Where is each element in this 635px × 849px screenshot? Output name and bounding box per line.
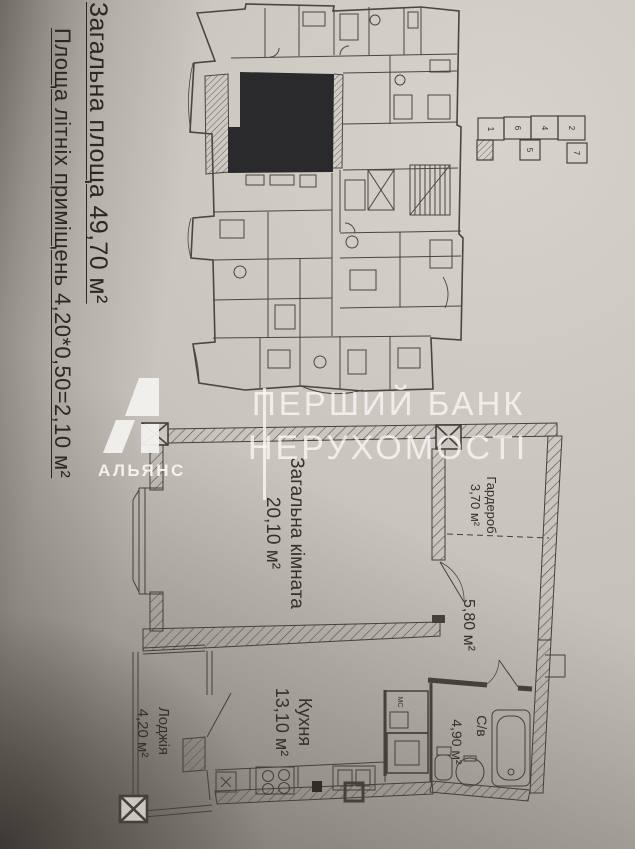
living-room-area: 20,10 м² — [262, 497, 283, 569]
note-summer-area: Площа літніх приміщень 4,20*0,50=2,10 м² — [49, 28, 75, 478]
key-section-7: 7 — [572, 151, 581, 156]
wardrobe-name: Гардероб — [484, 476, 499, 533]
loggia-area: 4,20 м² — [134, 709, 151, 758]
key-section-1: 1 — [486, 127, 495, 132]
key-section-2: 2 — [567, 126, 576, 131]
highlighted-unit — [228, 72, 334, 173]
watermark-line2: НЕРУХОМОСТІ — [248, 429, 528, 468]
watermark-line1: ПЕРШИЙ БАНК — [252, 385, 526, 423]
key-section-4: 4 — [540, 126, 549, 131]
key-section-5: 5 — [525, 148, 534, 153]
kitchen-area: 13,10 м² — [272, 688, 292, 756]
brand-name: АЛЬЯНС — [98, 461, 186, 481]
wardrobe-area: 3,70 м² — [468, 484, 483, 527]
loggia-name: Лоджія — [155, 707, 172, 755]
note-total-area: Загальна площа 49,70 м² — [83, 2, 112, 304]
key-plan: 1 6 4 2 5 7 — [477, 116, 587, 163]
key-plan-current-section — [477, 140, 493, 160]
floor-plan-photo: 1 6 4 2 5 7 — [0, 0, 635, 849]
bathroom-name: С/в — [474, 715, 490, 736]
hallway-area: 5,80 м² — [460, 599, 477, 652]
living-room-name: Загальна кімната — [286, 457, 307, 609]
kitchen-name: Кухня — [295, 698, 315, 746]
key-section-6: 6 — [513, 126, 522, 131]
bathroom-area: 4,90 м² — [449, 719, 465, 765]
building-floor-plan — [188, 4, 463, 394]
shaft-label: МС — [396, 697, 403, 708]
